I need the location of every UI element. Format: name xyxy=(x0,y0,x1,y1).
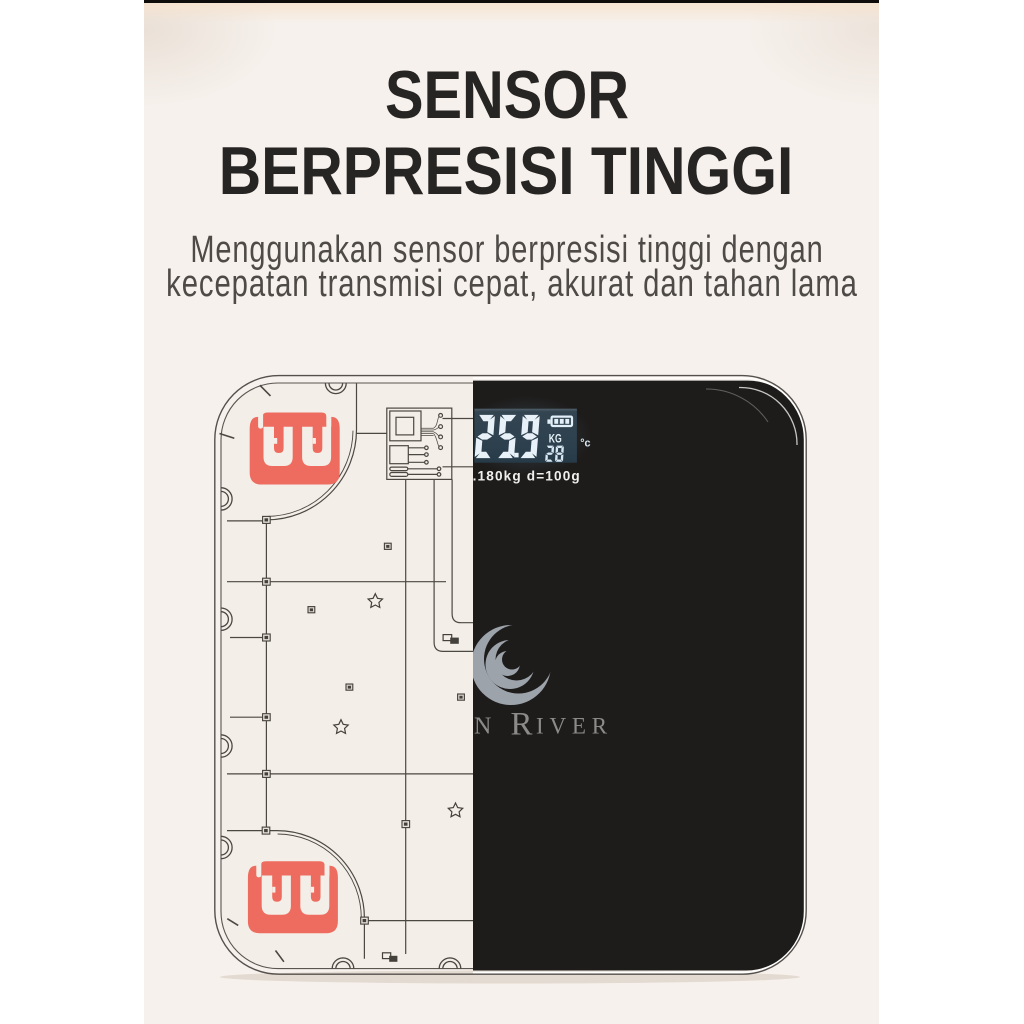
svg-text:KG: KG xyxy=(549,432,562,446)
svg-text:N: N xyxy=(474,714,491,740)
svg-text:.180kg d=100g: .180kg d=100g xyxy=(473,468,581,483)
svg-text:R: R xyxy=(511,707,533,743)
svg-text:IVER: IVER xyxy=(536,714,613,739)
svg-text:°c: °c xyxy=(580,438,590,450)
